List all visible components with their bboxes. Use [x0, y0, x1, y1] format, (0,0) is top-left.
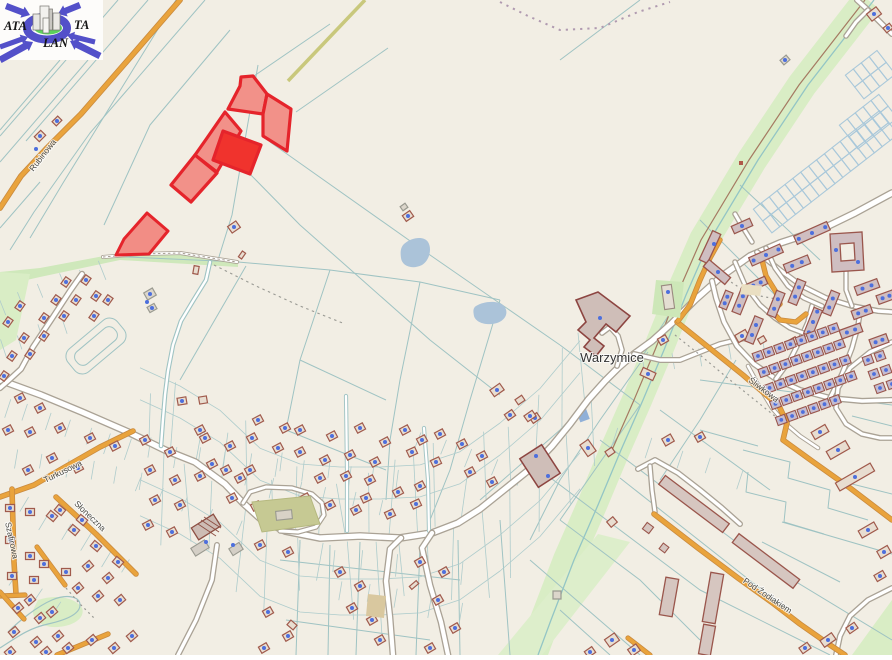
svg-text:ATA: ATA — [3, 19, 27, 33]
svg-text:LAN: LAN — [42, 36, 69, 50]
svg-text:Warzymice: Warzymice — [580, 350, 644, 365]
svg-text:TA: TA — [74, 18, 89, 32]
